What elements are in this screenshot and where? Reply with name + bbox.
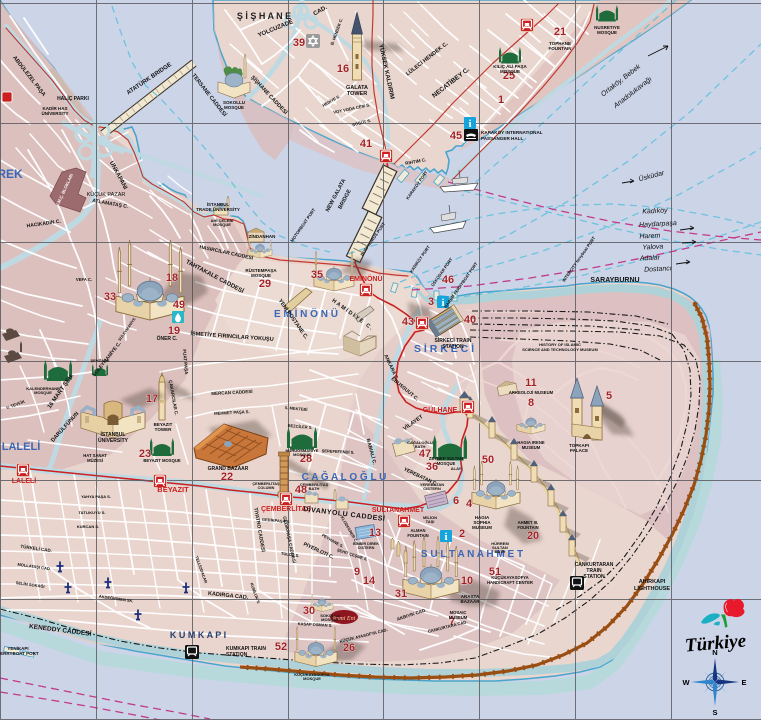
svg-text:STATION: STATION: [583, 574, 605, 580]
svg-text:EMİNÖNÜ: EMİNÖNÜ: [349, 274, 382, 283]
svg-text:S: S: [712, 708, 717, 717]
svg-text:K U M K A P I: K U M K A P I: [170, 630, 226, 640]
svg-text:LIGHTHOUSE: LIGHTHOUSE: [634, 586, 670, 592]
svg-text:5: 5: [606, 390, 612, 402]
svg-text:MOSQUE: MOSQUE: [213, 222, 231, 227]
svg-text:N: N: [712, 648, 717, 657]
svg-text:S U L T A N A H M E T: S U L T A N A H M E T: [421, 549, 523, 560]
svg-text:KURCAN S.: KURCAN S.: [77, 524, 99, 529]
svg-text:11: 11: [525, 377, 537, 389]
svg-text:FOUNTAIN: FOUNTAIN: [549, 46, 572, 51]
svg-text:2: 2: [459, 528, 465, 540]
svg-text:14: 14: [363, 575, 376, 587]
svg-text:W: W: [682, 678, 690, 687]
svg-text:30: 30: [303, 605, 315, 617]
svg-text:FOUNTAIN: FOUNTAIN: [517, 525, 538, 530]
svg-text:FERRYBOAT PORT: FERRYBOAT PORT: [0, 651, 39, 656]
svg-text:31: 31: [395, 588, 407, 600]
svg-text:MUSEUM: MUSEUM: [472, 525, 492, 530]
svg-text:FOUNTAIN: FOUNTAIN: [407, 533, 428, 538]
svg-text:22: 22: [221, 471, 233, 483]
svg-text:3: 3: [428, 296, 434, 308]
svg-text:LALELİ: LALELİ: [12, 477, 37, 485]
svg-text:41: 41: [360, 138, 372, 150]
svg-text:21: 21: [554, 26, 566, 38]
svg-text:1: 1: [498, 94, 504, 106]
svg-text:İSTANBUL: İSTANBUL: [101, 431, 126, 438]
svg-text:GRAND BAZAAR: GRAND BAZAAR: [208, 466, 249, 472]
svg-text:49: 49: [173, 299, 185, 311]
svg-text:MUSEUM: MUSEUM: [522, 445, 541, 450]
svg-text:16: 16: [337, 63, 349, 75]
svg-text:Harem: Harem: [639, 232, 661, 240]
svg-text:CISTERN: CISTERN: [358, 546, 375, 550]
svg-text:13: 13: [369, 527, 381, 539]
svg-text:50: 50: [482, 454, 494, 466]
svg-text:26: 26: [343, 642, 355, 654]
svg-text:Ş İ Ş H A N E: Ş İ Ş H A N E: [237, 11, 291, 21]
svg-text:STATION: STATION: [442, 344, 464, 350]
svg-text:LALELİ: LALELİ: [2, 440, 41, 453]
svg-text:48: 48: [295, 484, 307, 496]
svg-text:i: i: [444, 531, 447, 543]
svg-text:SULTANAHMET: SULTANAHMET: [372, 507, 425, 514]
svg-text:43: 43: [402, 316, 414, 328]
svg-text:VEFA C.: VEFA C.: [76, 277, 92, 282]
svg-text:TOWER: TOWER: [155, 427, 172, 432]
svg-text:ALAY: ALAY: [451, 466, 462, 471]
svg-text:PALACE: PALACE: [570, 448, 588, 453]
svg-text:39: 39: [293, 37, 305, 49]
svg-text:GÜLHANE: GÜLHANE: [423, 405, 458, 414]
svg-text:C A Ğ A L O Ğ L U: C A Ğ A L O Ğ L U: [302, 470, 387, 483]
svg-text:17: 17: [146, 393, 158, 405]
svg-text:BATH: BATH: [495, 549, 506, 554]
svg-text:46: 46: [442, 274, 454, 286]
svg-text:CISTERN: CISTERN: [423, 486, 441, 491]
svg-text:TRADE ÜNİVERSİTY: TRADE ÜNİVERSİTY: [196, 206, 240, 212]
svg-text:SARAYBURNU: SARAYBURNU: [590, 277, 639, 284]
svg-text:MOSQUE: MOSQUE: [500, 69, 520, 74]
svg-text:Kadıköy: Kadıköy: [642, 207, 668, 215]
svg-text:HANDICRAFT CENTER: HANDICRAFT CENTER: [487, 580, 533, 585]
svg-text:ÜNİVERSİTY: ÜNİVERSİTY: [41, 110, 68, 116]
svg-text:ZİNDANHAN: ZİNDANHAN: [249, 233, 276, 239]
svg-text:Adalar: Adalar: [639, 254, 661, 262]
svg-text:ÜNİVERSİTY: ÜNİVERSİTY: [98, 437, 129, 444]
svg-text:35: 35: [311, 269, 323, 281]
svg-text:MOSQUE: MOSQUE: [597, 30, 617, 35]
svg-text:TATLIKUYU S.: TATLIKUYU S.: [79, 510, 106, 515]
svg-text:AHIRKAPI: AHIRKAPI: [639, 579, 666, 585]
svg-text:40: 40: [464, 314, 476, 326]
svg-text:18: 18: [166, 272, 178, 284]
svg-text:6: 6: [453, 495, 459, 507]
svg-text:Dostancı: Dostancı: [644, 265, 672, 273]
svg-text:MOSQUE: MOSQUE: [303, 676, 321, 681]
svg-text:HALİÇ PARKI: HALİÇ PARKI: [57, 95, 89, 102]
svg-text:MOSQUE: MOSQUE: [224, 105, 244, 110]
svg-text:TAŞI: TAŞI: [426, 519, 435, 524]
svg-text:COLUMN: COLUMN: [258, 486, 275, 490]
svg-text:STATION: STATION: [226, 652, 248, 658]
svg-text:MOSQUE: MOSQUE: [34, 390, 52, 395]
svg-text:KARAKÖY INTERNATIONAL: KARAKÖY INTERNATIONAL: [481, 129, 543, 135]
svg-text:i: i: [468, 118, 471, 130]
svg-text:BAZAAR: BAZAAR: [461, 599, 481, 604]
svg-text:PASSANGER HALL: PASSANGER HALL: [481, 136, 523, 141]
svg-text:BATH: BATH: [415, 444, 426, 449]
svg-text:52: 52: [275, 641, 287, 653]
svg-text:45: 45: [450, 130, 462, 142]
svg-text:MOSQUE: MOSQUE: [321, 617, 339, 622]
svg-text:4: 4: [466, 498, 473, 510]
svg-text:SCIENCE AND TECHNOLOGY MUSEUM: SCIENCE AND TECHNOLOGY MUSEUM: [522, 347, 598, 352]
svg-text:20: 20: [527, 530, 539, 542]
svg-text:10: 10: [461, 575, 473, 587]
svg-text:MOSQUE: MOSQUE: [251, 273, 271, 278]
svg-text:ÖNER C.: ÖNER C.: [157, 335, 178, 342]
svg-text:ARKEOLOJİ MUSEUM: ARKEOLOJİ MUSEUM: [509, 390, 554, 395]
svg-text:Yalova: Yalova: [642, 243, 663, 251]
svg-text:9: 9: [354, 566, 360, 578]
svg-text:BEYAZIT: BEYAZIT: [157, 485, 189, 494]
svg-text:REK: REK: [0, 167, 23, 181]
svg-text:MOSQUE: MOSQUE: [293, 452, 311, 457]
svg-text:E: E: [741, 678, 746, 687]
svg-text:MÜZESİ: MÜZESİ: [87, 458, 103, 463]
svg-text:TOWER: TOWER: [347, 91, 367, 97]
svg-text:BEYAZIT MOSQUE: BEYAZIT MOSQUE: [143, 458, 181, 463]
svg-text:YAHYA PAŞA S.: YAHYA PAŞA S.: [81, 494, 111, 499]
svg-text:BATH: BATH: [309, 486, 320, 491]
svg-text:8: 8: [528, 397, 534, 409]
svg-text:33: 33: [104, 291, 116, 303]
svg-text:29: 29: [259, 278, 271, 290]
svg-text:SİRKECİ TRAIN: SİRKECİ TRAIN: [435, 337, 472, 344]
